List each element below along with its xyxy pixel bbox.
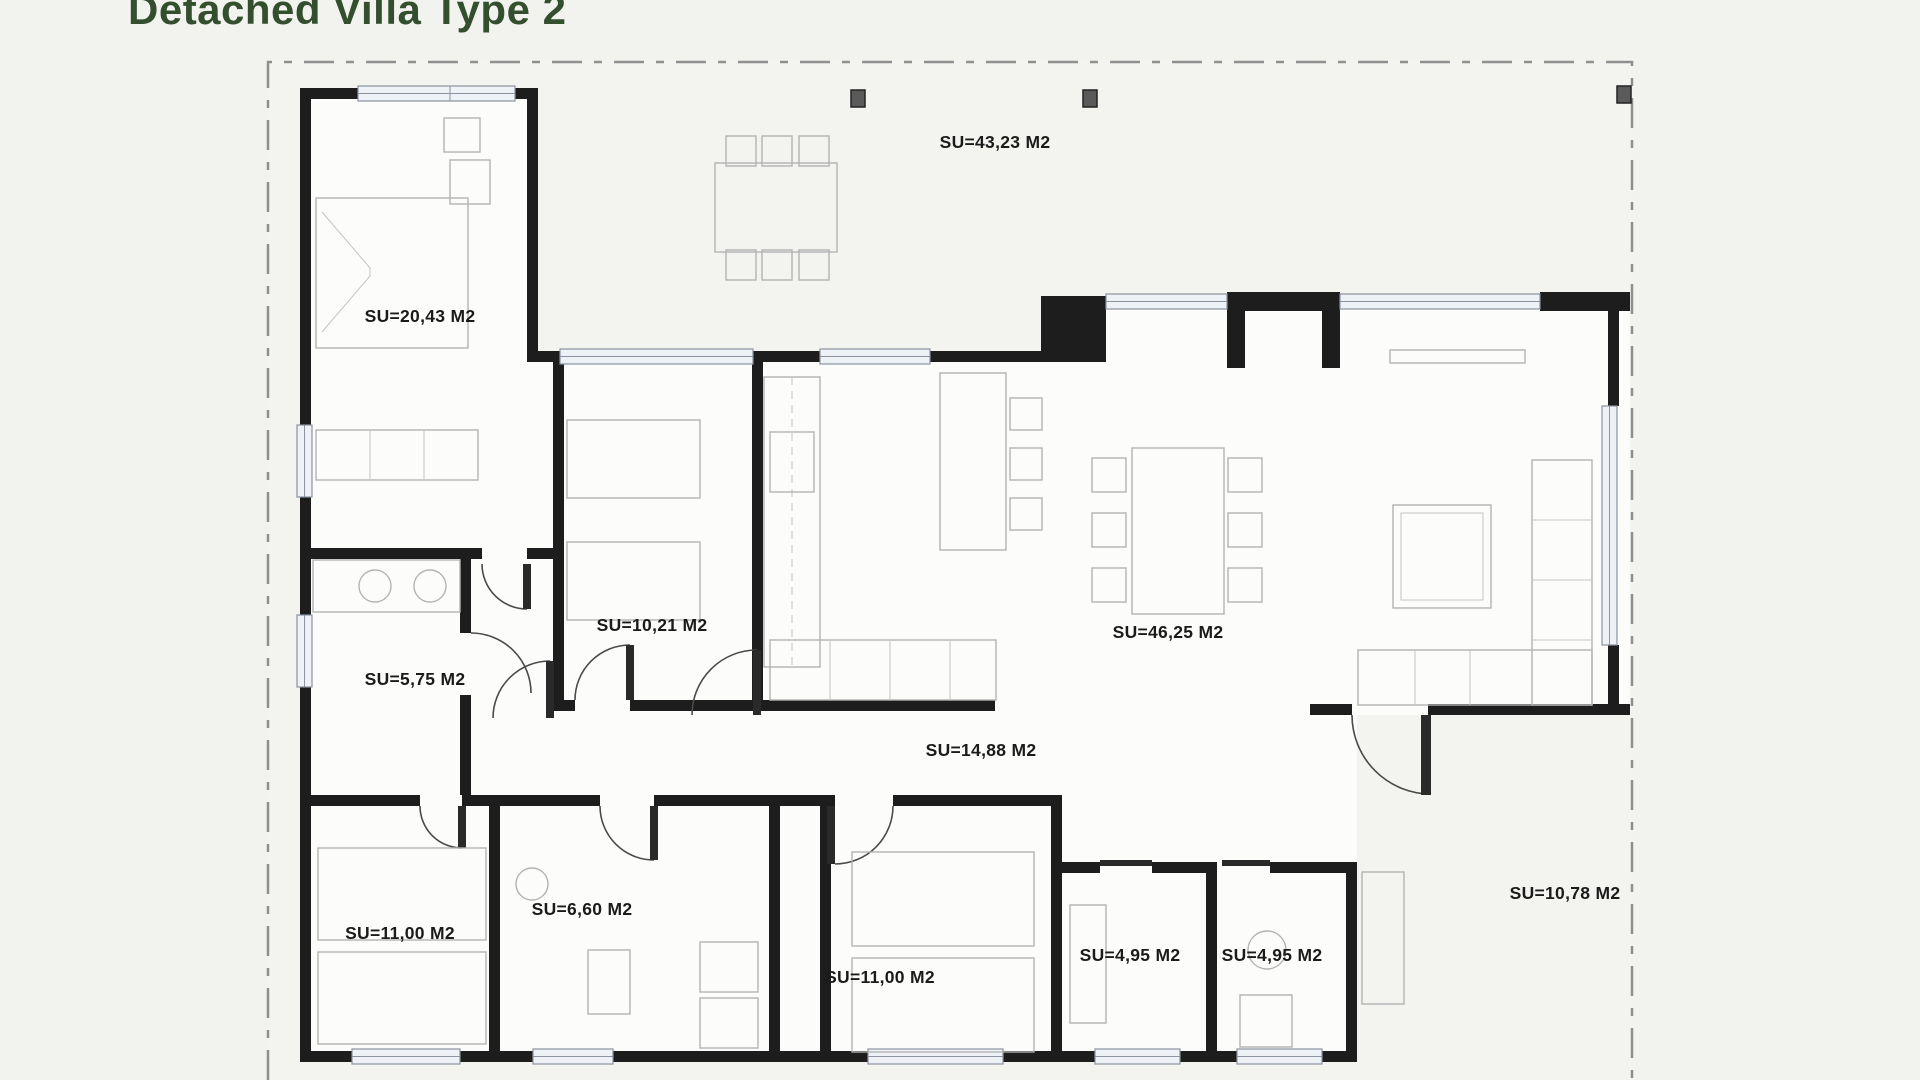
- room-label-utility: SU=5,75 M2: [365, 669, 466, 689]
- room-label-living-dining: SU=46,25 M2: [1113, 622, 1224, 642]
- room-label-bathroom: SU=6,60 M2: [532, 899, 633, 919]
- room-label-wc-1: SU=4,95 M2: [1080, 945, 1181, 965]
- room-label-terrace: SU=43,23 M2: [940, 132, 1051, 152]
- room-label-bedroom-right: SU=11,00 M2: [825, 967, 935, 987]
- room-label-bedroom-left: SU=11,00 M2: [345, 923, 455, 943]
- floor-plan-page: Detached Villa Type 2: [0, 0, 1920, 1080]
- room-label-master-bedroom: SU=20,43 M2: [365, 306, 476, 326]
- entrance-door: [1421, 715, 1431, 795]
- room-label-entrance-porch: SU=10,78 M2: [1510, 883, 1621, 903]
- room-label-wc-2: SU=4,95 M2: [1222, 945, 1323, 965]
- room-label-hallway: SU=14,88 M2: [926, 740, 1037, 760]
- room-label-bedroom-middle: SU=10,21 M2: [597, 615, 708, 635]
- floor-plan-drawing: SU=43,23 M2 SU=20,43 M2 SU=10,21 M2 SU=5…: [0, 0, 1920, 1080]
